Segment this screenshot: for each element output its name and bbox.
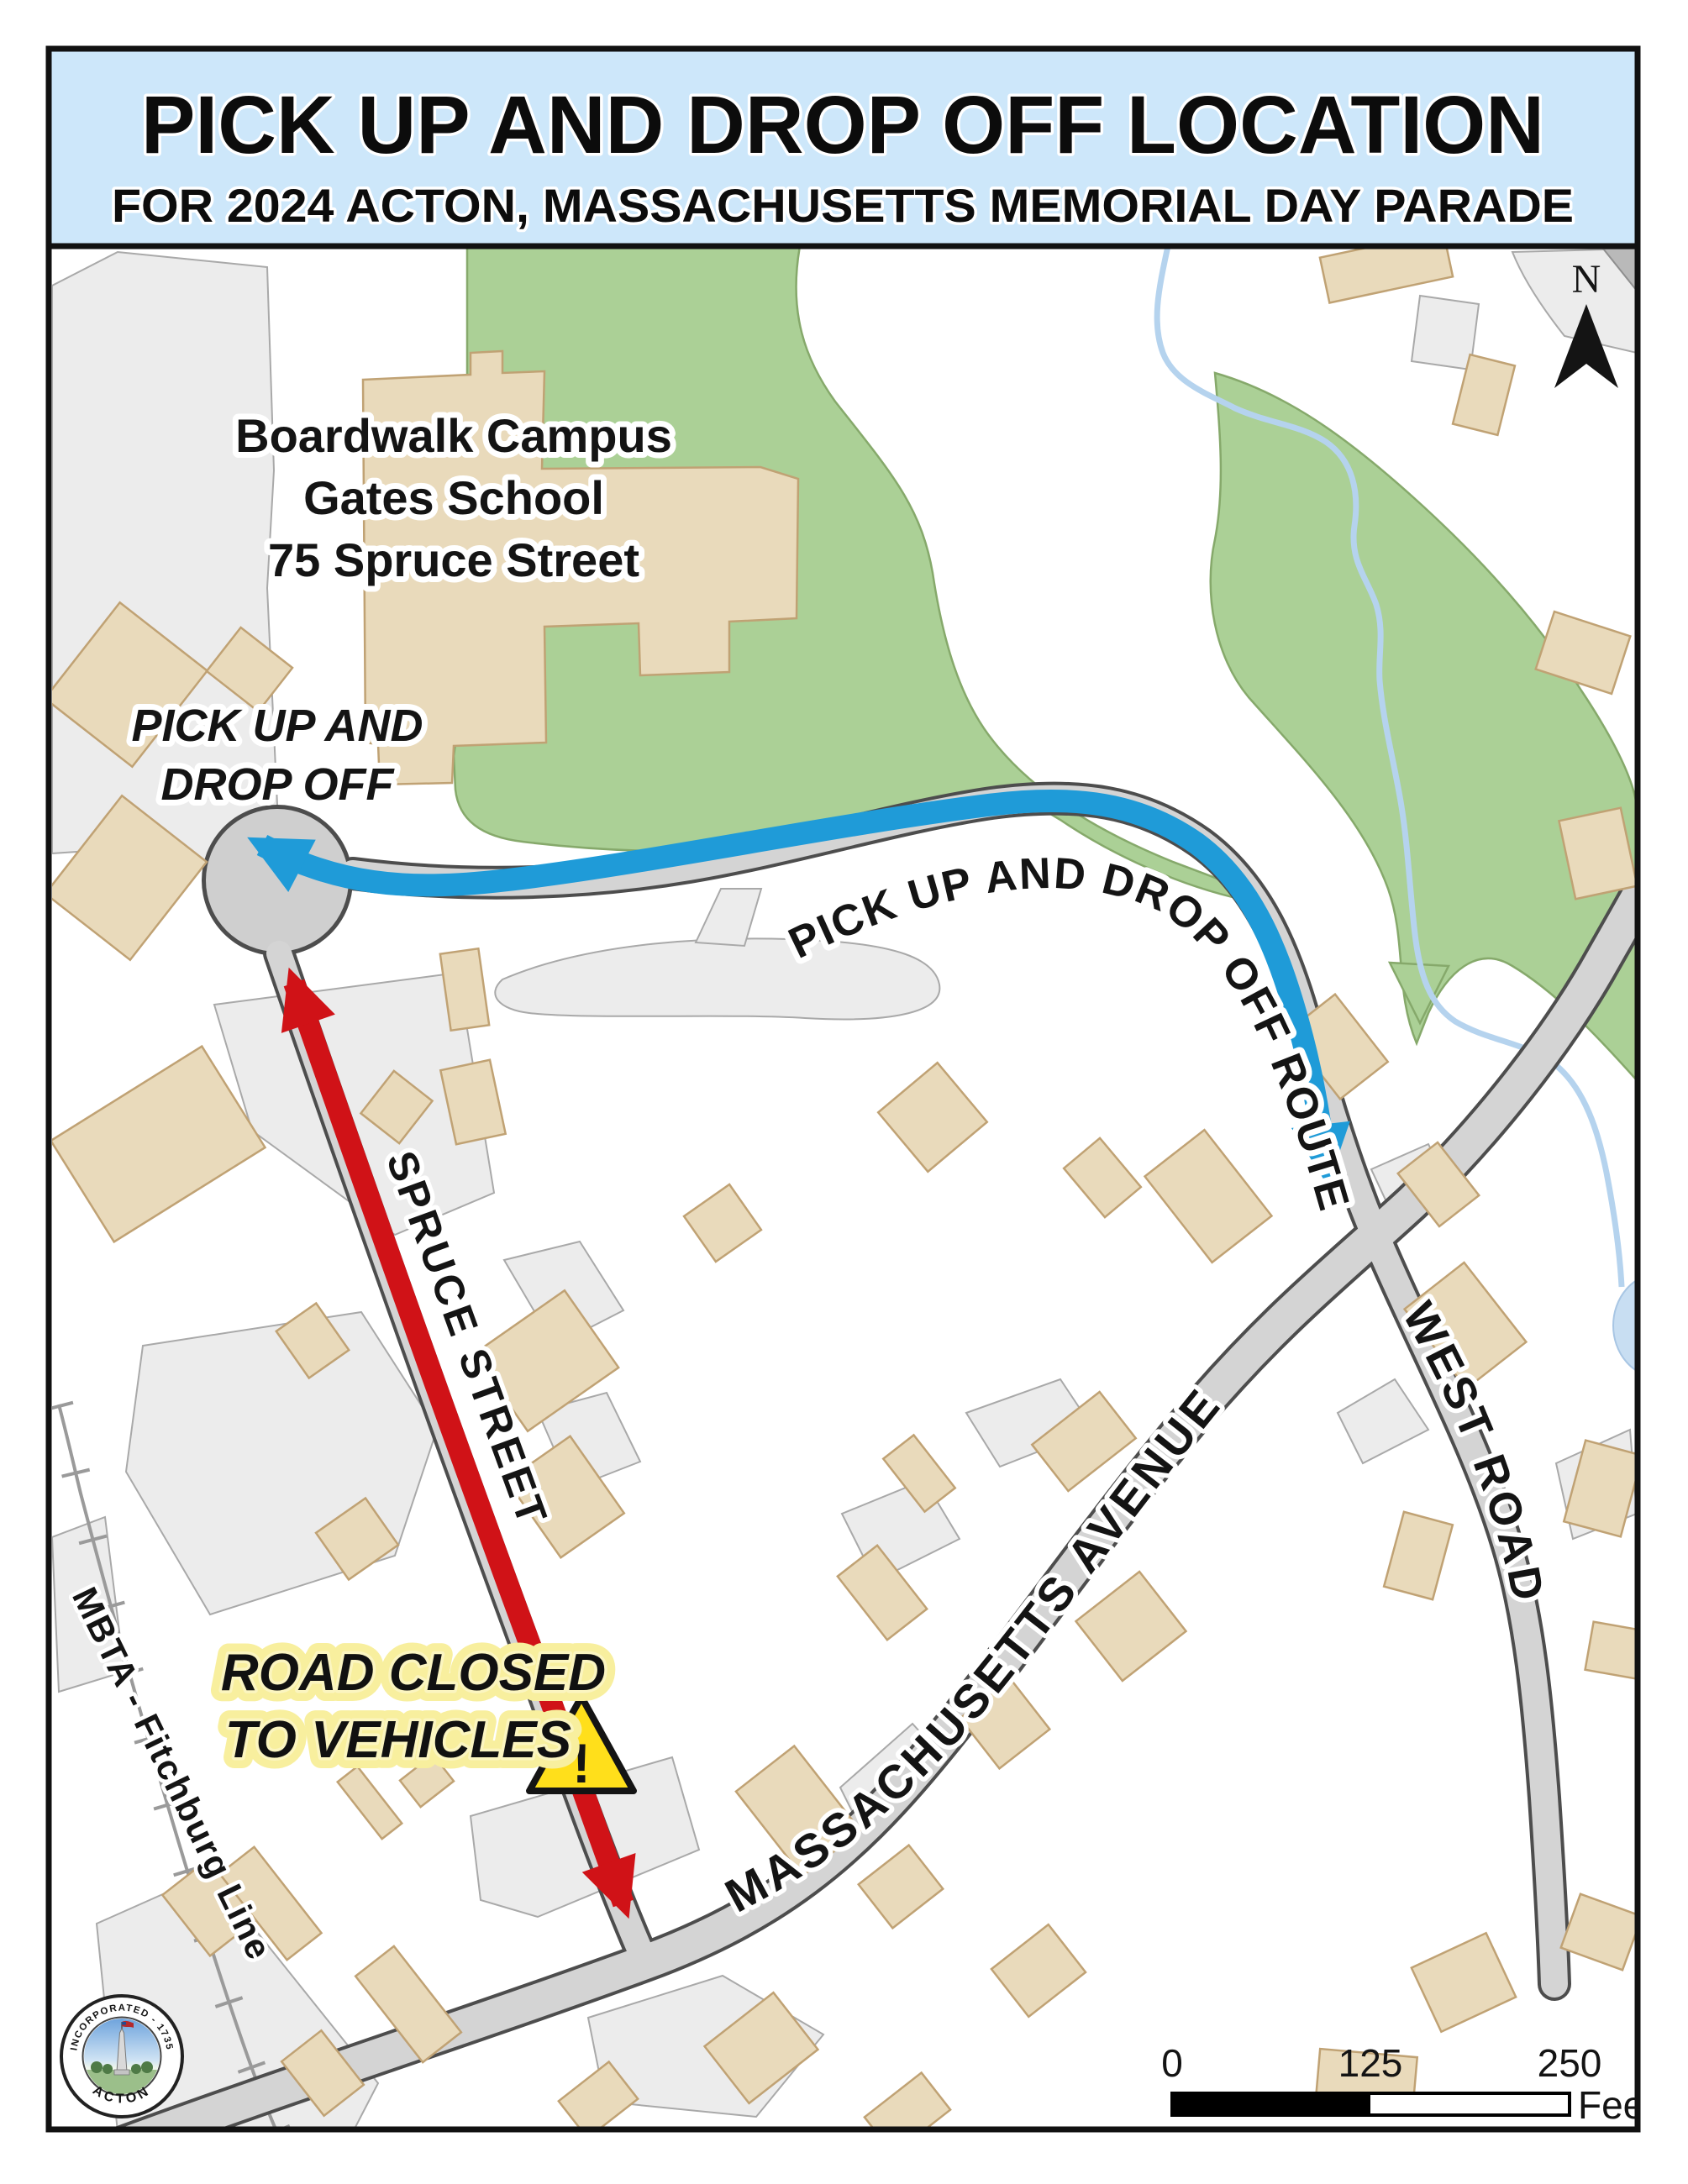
school-label-line1: Boardwalk Campus (235, 409, 672, 462)
pickup-label-line1: PICK UP AND (131, 701, 423, 751)
road-closed-line2: TO VEHICLES (225, 1711, 571, 1769)
scale-start: 0 (1161, 2041, 1183, 2085)
town-seal: INCORPORATED - 1735 ACTON (61, 1996, 182, 2117)
scale-unit: Feet (1578, 2083, 1655, 2127)
road-closed-line1: ROAD CLOSED (221, 1644, 606, 1702)
school-label-line3: 75 Spruce Street (268, 533, 639, 586)
pond (1613, 1273, 1688, 1378)
north-label: N (1572, 257, 1601, 302)
scale-end: 250 (1538, 2041, 1602, 2085)
pickup-label-line2: DROP OFF (161, 759, 396, 810)
page-subtitle: FOR 2024 ACTON, MASSACHUSETTS MEMORIAL D… (112, 179, 1574, 232)
page-title: PICK UP AND DROP OFF LOCATION (141, 79, 1544, 171)
map-canvas: ! SPRUCE STREET MASSACHUSETTS AVENUE WES… (45, 232, 1688, 2155)
scale-mid: 125 (1338, 2041, 1403, 2085)
parade-map: ! SPRUCE STREET MASSACHUSETTS AVENUE WES… (0, 0, 1688, 2184)
warning-exclamation: ! (572, 1732, 591, 1794)
map-page: ! SPRUCE STREET MASSACHUSETTS AVENUE WES… (0, 0, 1688, 2184)
school-label-line2: Gates School (303, 471, 604, 524)
